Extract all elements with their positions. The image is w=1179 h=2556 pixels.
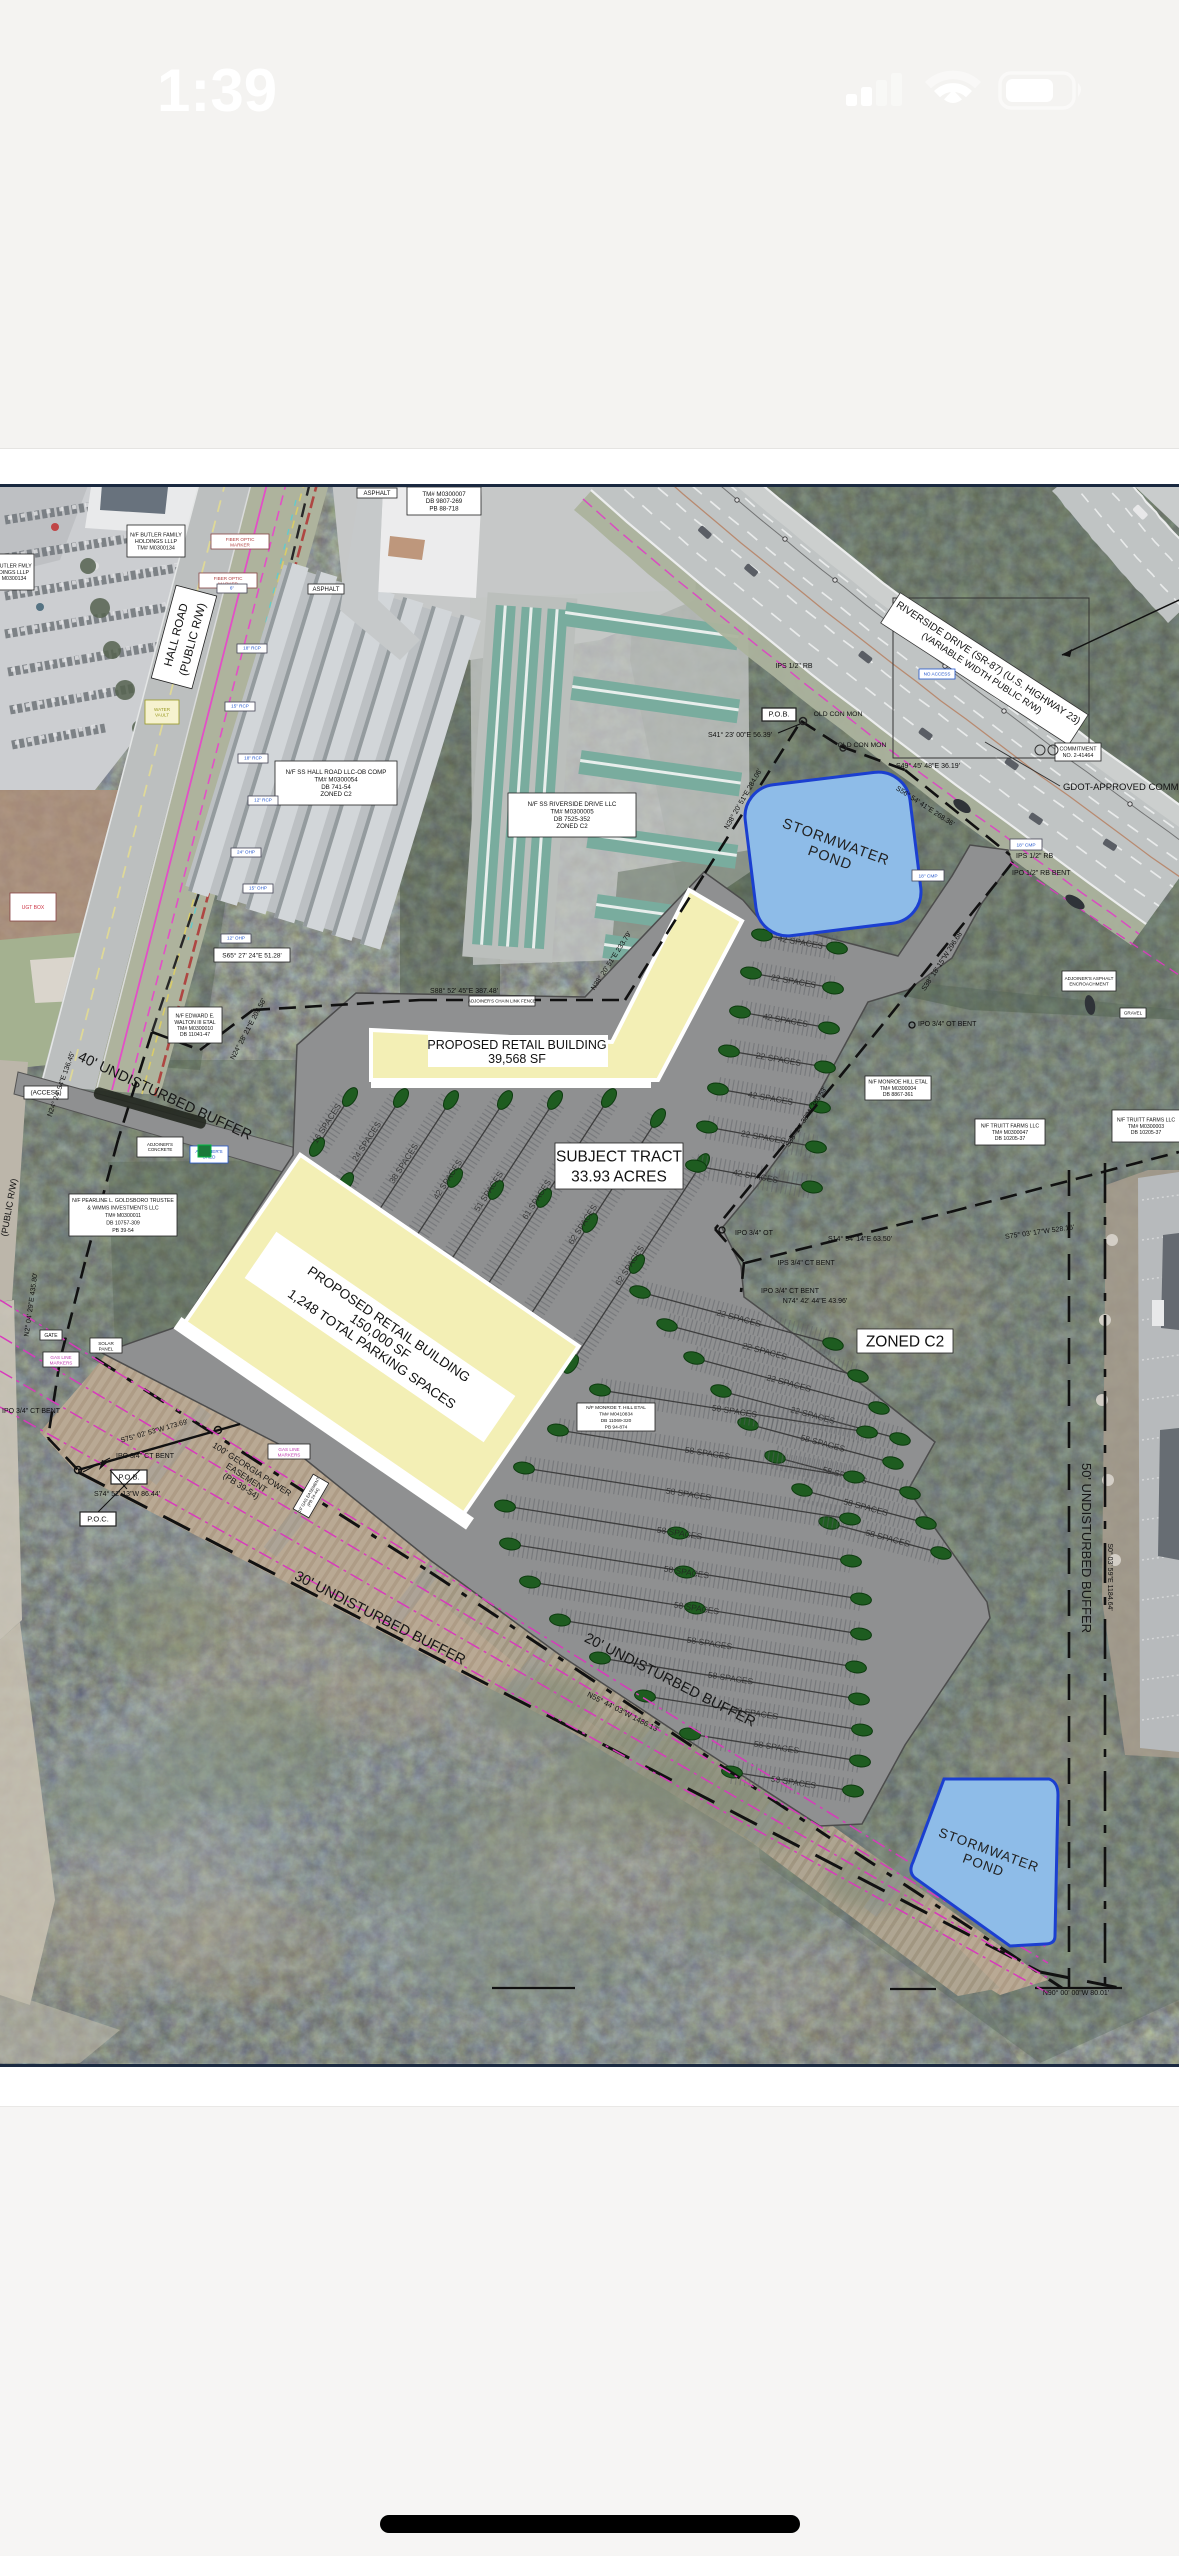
svg-text:ADJOINER'S ASPHALT: ADJOINER'S ASPHALT xyxy=(1065,976,1114,981)
svg-text:SUBJECT TRACT: SUBJECT TRACT xyxy=(556,1148,683,1165)
svg-text:NO. 2-41464: NO. 2-41464 xyxy=(1063,753,1094,759)
svg-text:N/F PEARLINE L. GOLDSBORO TRUS: N/F PEARLINE L. GOLDSBORO TRUSTEE xyxy=(72,1198,174,1204)
svg-text:39,568 SF: 39,568 SF xyxy=(488,1052,546,1066)
svg-text:UGT BOX: UGT BOX xyxy=(22,905,45,911)
svg-text:DB 7525-352: DB 7525-352 xyxy=(554,816,591,823)
svg-text:VAULT: VAULT xyxy=(155,712,169,717)
svg-text:DB 8867-361: DB 8867-361 xyxy=(883,1092,914,1098)
svg-text:N/F MONROE HILL ETAL: N/F MONROE HILL ETAL xyxy=(868,1080,927,1086)
svg-text:TM# M0300047: TM# M0300047 xyxy=(992,1130,1028,1136)
svg-text:FIBER OPTIC: FIBER OPTIC xyxy=(214,576,244,581)
svg-text:N/F TRUITT FARMS LLC: N/F TRUITT FARMS LLC xyxy=(1117,1118,1176,1124)
svg-text:DB 11069-320: DB 11069-320 xyxy=(601,1418,632,1424)
svg-text:15" OHP: 15" OHP xyxy=(249,886,267,891)
svg-text:DB 10205-37: DB 10205-37 xyxy=(1131,1130,1162,1136)
svg-text:18" CMP: 18" CMP xyxy=(1016,843,1035,849)
svg-text:DB 741-54: DB 741-54 xyxy=(321,784,351,791)
svg-text:TM# M0300134: TM# M0300134 xyxy=(137,545,175,551)
svg-text:IPO 3/4" CT BENT: IPO 3/4" CT BENT xyxy=(761,1288,820,1295)
svg-text:IPO 3/4" OT BENT: IPO 3/4" OT BENT xyxy=(918,1021,977,1028)
svg-text:IPS 1/2" RB: IPS 1/2" RB xyxy=(775,663,812,670)
svg-text:TM# M0300003: TM# M0300003 xyxy=(1128,1124,1164,1130)
svg-text:ADJOINER'S CHAIN LINK FENCE: ADJOINER'S CHAIN LINK FENCE xyxy=(468,999,536,1004)
svg-text:MARKER: MARKER xyxy=(230,542,250,547)
svg-text:N90° 00' 00"W 80.01': N90° 00' 00"W 80.01' xyxy=(1043,1989,1109,1997)
svg-text:18" RCP: 18" RCP xyxy=(244,756,262,761)
svg-text:PB 94-874: PB 94-874 xyxy=(605,1424,628,1430)
svg-text:CONCRETE: CONCRETE xyxy=(148,1147,173,1152)
svg-text:TM# M0300004: TM# M0300004 xyxy=(880,1086,916,1092)
svg-text:TM# M0410834: TM# M0410834 xyxy=(599,1412,633,1418)
svg-text:12" OHP: 12" OHP xyxy=(227,936,245,941)
svg-text:GAS LINE: GAS LINE xyxy=(278,1447,299,1452)
svg-text:N/F SS HALL ROAD LLC-OB COMP: N/F SS HALL ROAD LLC-OB COMP xyxy=(286,769,387,776)
svg-text:COMMITMENT: COMMITMENT xyxy=(1059,747,1097,753)
svg-text:PANEL: PANEL xyxy=(99,1346,114,1351)
svg-text:WALTON III ETAL: WALTON III ETAL xyxy=(174,1020,215,1026)
svg-text:15" RCP: 15" RCP xyxy=(231,704,249,709)
svg-text:GRAVEL: GRAVEL xyxy=(1124,1011,1143,1016)
svg-text:ZONED C2: ZONED C2 xyxy=(556,823,588,830)
svg-text:P.O.B.: P.O.B. xyxy=(768,710,789,719)
svg-text:IPO 3/4" OT: IPO 3/4" OT xyxy=(735,1230,774,1237)
svg-text:PB 39-54: PB 39-54 xyxy=(112,1228,134,1234)
svg-text:PB 88-718: PB 88-718 xyxy=(429,506,459,513)
svg-text:IPO 3/4" CT BENT: IPO 3/4" CT BENT xyxy=(2,1408,61,1415)
svg-text:PROPOSED RETAIL BUILDING: PROPOSED RETAIL BUILDING xyxy=(427,1038,606,1052)
svg-text:IPS 1/2" RB: IPS 1/2" RB xyxy=(1016,853,1053,860)
svg-text:NO ACCESS: NO ACCESS xyxy=(924,672,951,677)
svg-text:ASPHALT: ASPHALT xyxy=(364,491,391,497)
svg-text:S88° 52' 45"E 387.48': S88° 52' 45"E 387.48' xyxy=(430,987,498,995)
svg-text:BUTLER FMLY: BUTLER FMLY xyxy=(0,564,32,570)
svg-text:24" OHP: 24" OHP xyxy=(237,850,255,855)
svg-text:TM# M0300011: TM# M0300011 xyxy=(105,1213,141,1219)
svg-text:DB 10205-37: DB 10205-37 xyxy=(995,1136,1026,1142)
svg-text:WATER: WATER xyxy=(154,707,171,712)
svg-text:S14° 54' 14"E 63.50': S14° 54' 14"E 63.50' xyxy=(828,1235,892,1243)
svg-text:P.O.C.: P.O.C. xyxy=(87,1515,109,1524)
svg-text:TM# M0300054: TM# M0300054 xyxy=(314,777,358,784)
svg-text:TM# M0300005: TM# M0300005 xyxy=(550,809,594,816)
svg-text:N/F BUTLER FAMILY: N/F BUTLER FAMILY xyxy=(130,533,182,539)
svg-text:S41° 23' 00"E 56.39': S41° 23' 00"E 56.39' xyxy=(708,731,772,739)
svg-text:DINGS LLLP: DINGS LLLP xyxy=(0,570,30,576)
svg-text:OLD CON MON: OLD CON MON xyxy=(814,711,863,718)
svg-text:GDOT-APPROVED COMM: GDOT-APPROVED COMM xyxy=(1063,782,1179,793)
svg-text:SOLAR: SOLAR xyxy=(98,1341,114,1346)
svg-text:DB 9807-269: DB 9807-269 xyxy=(426,498,463,505)
svg-text:6": 6" xyxy=(230,586,235,591)
svg-text:S49° 45' 48"E 36.19': S49° 45' 48"E 36.19' xyxy=(896,762,960,770)
svg-text:DB 10757-309: DB 10757-309 xyxy=(106,1220,140,1226)
svg-text:12" RCP: 12" RCP xyxy=(254,798,272,803)
svg-text:S0° 03' 59"E 1184.64': S0° 03' 59"E 1184.64' xyxy=(1106,1543,1114,1610)
svg-text:OLD CON MON: OLD CON MON xyxy=(838,742,887,749)
svg-text:DB 11041-47: DB 11041-47 xyxy=(180,1032,210,1038)
svg-text:N/F EDWARD E.: N/F EDWARD E. xyxy=(175,1014,214,1020)
svg-text:M0300134: M0300134 xyxy=(2,576,27,582)
svg-text:S74° 52' 13"W 86.44': S74° 52' 13"W 86.44' xyxy=(94,1490,160,1498)
svg-text:TM# M0300007: TM# M0300007 xyxy=(422,491,466,498)
svg-text:N/F TRUITT FARMS LLC: N/F TRUITT FARMS LLC xyxy=(981,1124,1040,1130)
svg-text:ENCROACHMENT: ENCROACHMENT xyxy=(1069,981,1108,986)
svg-text:FIBER OPTIC: FIBER OPTIC xyxy=(226,537,256,542)
svg-text:50' UNDISTURBED BUFFER: 50' UNDISTURBED BUFFER xyxy=(1079,1463,1094,1633)
svg-text:ASPHALT: ASPHALT xyxy=(313,587,340,593)
svg-text:ZONED C2: ZONED C2 xyxy=(866,1333,944,1350)
svg-text:& WMMS INVESTMENTS LLC: & WMMS INVESTMENTS LLC xyxy=(87,1205,158,1211)
svg-text:S65° 27' 24"E 51.28': S65° 27' 24"E 51.28' xyxy=(222,951,281,959)
svg-text:N/F MONROE T. HILL ETAL: N/F MONROE T. HILL ETAL xyxy=(586,1405,646,1411)
svg-text:IPO 1/2" RB BENT: IPO 1/2" RB BENT xyxy=(1012,870,1071,877)
svg-text:IPS 3/4" CT BENT: IPS 3/4" CT BENT xyxy=(777,1260,835,1267)
svg-text:18" RCP: 18" RCP xyxy=(243,646,261,651)
svg-text:N/F SS RIVERSIDE DRIVE LLC: N/F SS RIVERSIDE DRIVE LLC xyxy=(528,801,617,808)
svg-text:N74° 42' 44"E 43.96': N74° 42' 44"E 43.96' xyxy=(783,1297,847,1305)
svg-text:HOLDINGS LLLP: HOLDINGS LLLP xyxy=(135,539,178,545)
svg-text:18" CMP: 18" CMP xyxy=(918,874,937,880)
svg-text:MARKERS: MARKERS xyxy=(278,1452,301,1457)
svg-text:GATE: GATE xyxy=(44,1333,58,1339)
svg-text:GAS LINE: GAS LINE xyxy=(50,1355,71,1360)
svg-text:33.93 ACRES: 33.93 ACRES xyxy=(571,1168,667,1185)
svg-text:IPO 3/4" CT BENT: IPO 3/4" CT BENT xyxy=(116,1453,175,1460)
svg-text:TM# M0300010: TM# M0300010 xyxy=(177,1026,213,1032)
svg-text:MARKERS: MARKERS xyxy=(50,1360,73,1365)
svg-text:ZONED C2: ZONED C2 xyxy=(320,791,352,798)
